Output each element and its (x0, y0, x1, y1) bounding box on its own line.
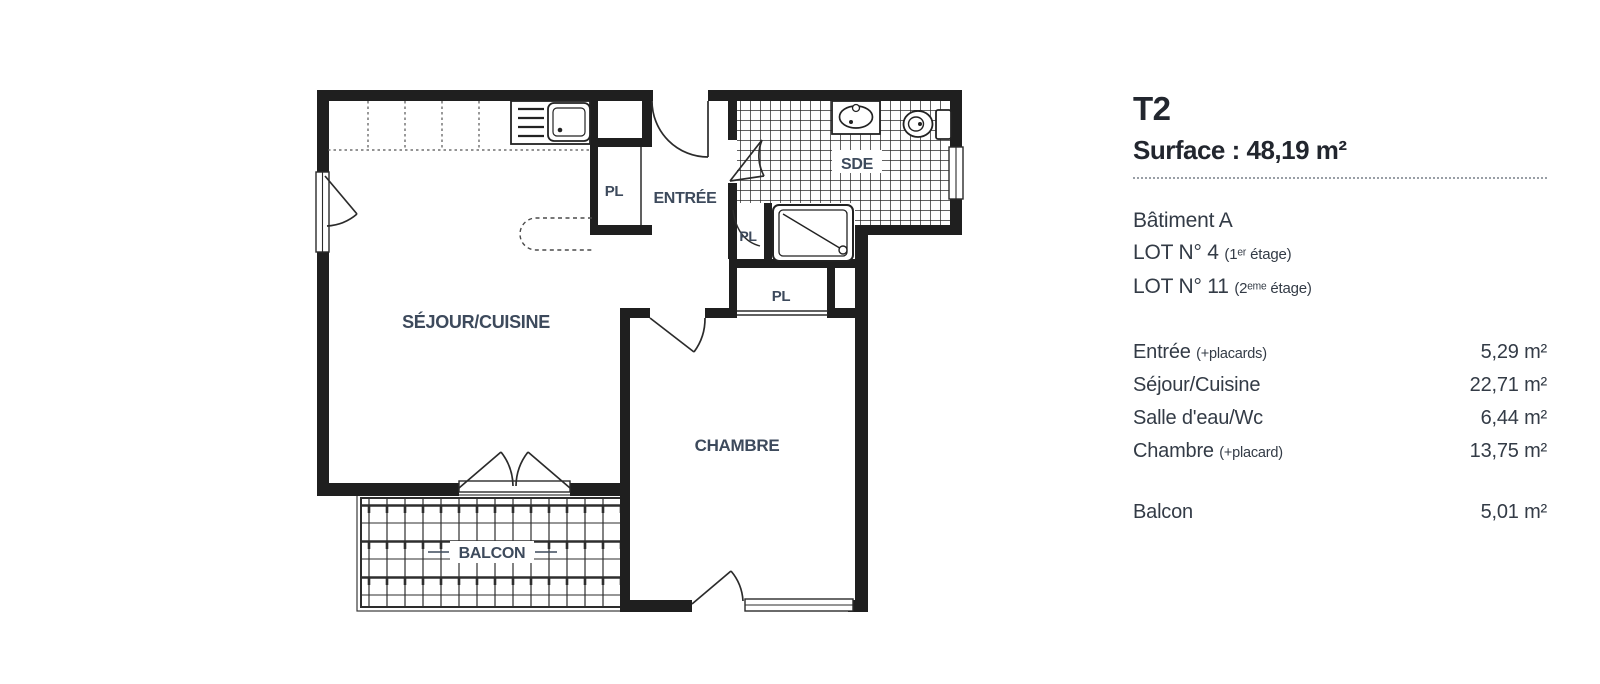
lot-row-2: LOT N° 11 (2ᵉᵐᵉ étage) (1133, 275, 1547, 301)
label-chambre: CHAMBRE (695, 436, 780, 455)
label-sejour: SÉJOUR/CUISINE (402, 311, 550, 332)
washbasin-icon (832, 101, 880, 134)
window-chambre-south (745, 599, 853, 611)
label-balcon: BALCON (459, 545, 526, 562)
window-sde-right (949, 147, 963, 199)
room-name: Entrée (1133, 341, 1191, 363)
balcony-row: Balcon 5,01 m² (1133, 497, 1547, 528)
label-pl-chambre: PL (772, 288, 791, 305)
lot-floor: (2ᵉᵐᵉ étage) (1234, 280, 1311, 297)
room-row: Séjour/Cuisine 22,71 m² (1133, 370, 1547, 403)
window-left (316, 172, 329, 252)
lot-number: LOT N° 11 (1133, 275, 1229, 298)
left-window-swing (325, 176, 357, 226)
room-row: Salle d'eau/Wc 6,44 m² (1133, 403, 1547, 436)
room-area: 22,71 m² (1470, 370, 1547, 401)
lot-floor: (1ᵉʳ étage) (1224, 246, 1291, 263)
french-door-sill (459, 481, 570, 492)
room-area: 6,44 m² (1481, 403, 1547, 434)
label-entree: ENTRÉE (653, 188, 717, 207)
chambre-window-door (692, 571, 743, 604)
label-pl-entry: PL (605, 183, 624, 200)
room-name: Salle d'eau/Wc (1133, 407, 1263, 429)
toilet-icon (904, 110, 952, 139)
room-name: Chambre (1133, 440, 1214, 462)
lot-row-1: LOT N° 4 (1ᵉʳ étage) (1133, 241, 1547, 267)
unit-type: T2 (1133, 92, 1547, 125)
room-area: 5,01 m² (1481, 497, 1547, 528)
kitchen-island-dashed (520, 218, 592, 250)
building-name: Bâtiment A (1133, 209, 1547, 233)
room-name: Balcon (1133, 497, 1193, 528)
room-suffix: (+placard) (1219, 445, 1283, 461)
room-row: Chambre (+placard) 13,75 m² (1133, 436, 1547, 469)
kitchen (328, 101, 592, 250)
surface-total: Surface : 48,19 m² (1133, 135, 1547, 166)
room-area: 13,75 m² (1470, 436, 1547, 467)
room-area-list: Entrée (+placards) 5,29 m² Séjour/Cuisin… (1133, 337, 1547, 469)
page: SÉJOUR/CUISINE ENTRÉE SDE CHAMBRE BALCON… (0, 0, 1600, 684)
chambre-door (650, 318, 705, 352)
entrance-door (652, 101, 708, 157)
sink-icon (548, 103, 590, 141)
shower-icon (773, 205, 853, 261)
lot-number: LOT N° 4 (1133, 241, 1219, 264)
room-row: Entrée (+placards) 5,29 m² (1133, 337, 1547, 370)
dotted-divider (1133, 177, 1547, 179)
room-suffix: (+placards) (1196, 346, 1267, 362)
info-panel: T2 Surface : 48,19 m² Bâtiment A LOT N° … (1133, 92, 1547, 528)
label-sde: SDE (841, 156, 874, 173)
label-pl-sde: PL (739, 228, 757, 244)
room-area: 5,29 m² (1481, 337, 1547, 368)
room-name: Séjour/Cuisine (1133, 374, 1260, 396)
